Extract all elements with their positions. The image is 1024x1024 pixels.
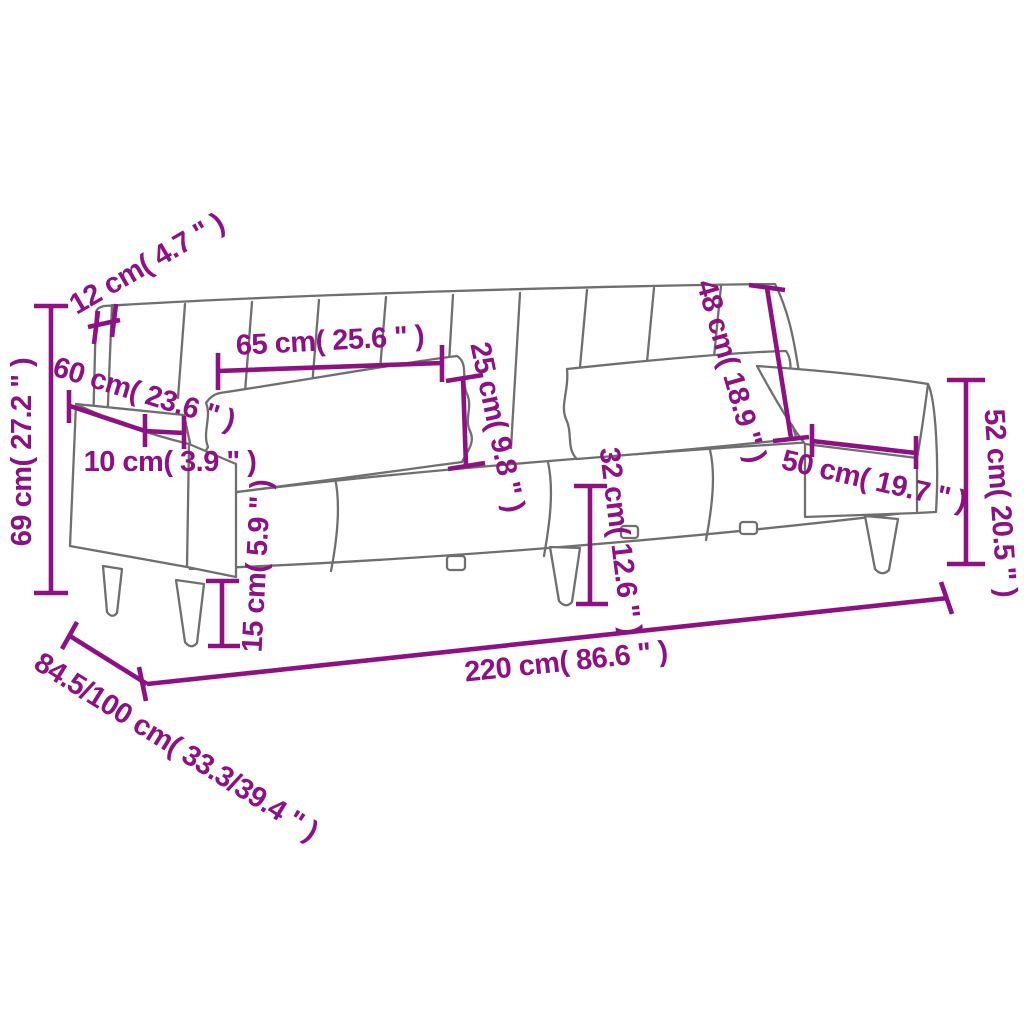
- dim-label-overall-width: 220 cm( 86.6 " ): [463, 635, 669, 688]
- support-tab-right: [740, 522, 757, 534]
- support-tab-left: [447, 556, 465, 570]
- dim-line-arm-height: [947, 380, 985, 564]
- dim-label-overall-depth: 84.5/100 cm( 33.3/39.4 " ): [28, 647, 323, 848]
- sofa-dimension-drawing: 69 cm( 27.2 " ) 12 cm( 4.7 " ) 65 cm( 25…: [0, 0, 1024, 1024]
- dim-line-leg-height: [206, 581, 240, 646]
- leg-right: [865, 516, 898, 573]
- leg-left-outer: [103, 566, 122, 616]
- dim-label-armrest-width: 10 cm( 3.9 " ): [84, 446, 257, 478]
- leg-center: [550, 547, 580, 605]
- dim-line-overall-height: [34, 306, 68, 593]
- dim-label-arm-height: 52 cm( 20.5 " ): [977, 408, 1022, 598]
- dim-label-overall-height: 69 cm( 27.2 " ): [6, 358, 38, 546]
- dimension-diagram: 69 cm( 27.2 " ) 12 cm( 4.7 " ) 65 cm( 25…: [0, 0, 1024, 1024]
- leg-left-inner: [176, 580, 204, 646]
